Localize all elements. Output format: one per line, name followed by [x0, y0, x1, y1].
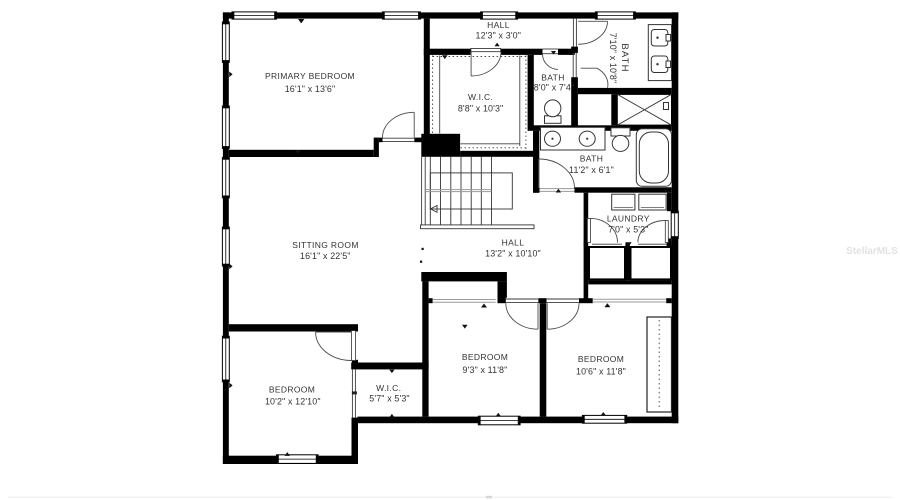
svg-text:LAUNDRY: LAUNDRY	[607, 214, 650, 224]
svg-text:7'0" x 5'3": 7'0" x 5'3"	[608, 225, 648, 235]
svg-text:12'3" x 3'0": 12'3" x 3'0"	[476, 30, 522, 40]
svg-text:16'1" x 13'6": 16'1" x 13'6"	[285, 84, 336, 94]
svg-text:BEDROOM: BEDROOM	[462, 352, 508, 362]
svg-text:SITTING ROOM: SITTING ROOM	[292, 240, 359, 250]
svg-text:StellarMLS: StellarMLS	[846, 246, 898, 257]
svg-text:BATH: BATH	[580, 154, 603, 164]
svg-text:BEDROOM: BEDROOM	[578, 354, 624, 364]
svg-text:10'6" x 11'8": 10'6" x 11'8"	[576, 367, 626, 377]
svg-text:9'3" x 11'8": 9'3" x 11'8"	[463, 365, 508, 375]
svg-text:8'0" x 7'4": 8'0" x 7'4"	[534, 83, 574, 93]
svg-text:13'2" x 10'10": 13'2" x 10'10"	[485, 249, 541, 259]
svg-text:11'2" x 6'1": 11'2" x 6'1"	[569, 165, 614, 175]
svg-text:W.I.C.: W.I.C.	[376, 383, 401, 393]
svg-text:7'10" x 10'8": 7'10" x 10'8"	[608, 33, 618, 84]
svg-text:BATH: BATH	[541, 73, 564, 83]
svg-text:10'2" x 12'10": 10'2" x 12'10"	[265, 397, 321, 407]
svg-text:W.I.C.: W.I.C.	[468, 92, 493, 102]
svg-text:HALL: HALL	[502, 238, 525, 248]
svg-text:5'7" x 5'3": 5'7" x 5'3"	[369, 394, 409, 404]
svg-text:PRIMARY BEDROOM: PRIMARY BEDROOM	[265, 71, 355, 81]
svg-text:16'1" x 22'5": 16'1" x 22'5"	[300, 251, 351, 261]
svg-text:HALL: HALL	[487, 20, 510, 30]
svg-text:BEDROOM: BEDROOM	[269, 385, 315, 395]
svg-text:BATH: BATH	[619, 43, 630, 72]
svg-text:8'8" x 10'3": 8'8" x 10'3"	[458, 104, 504, 114]
